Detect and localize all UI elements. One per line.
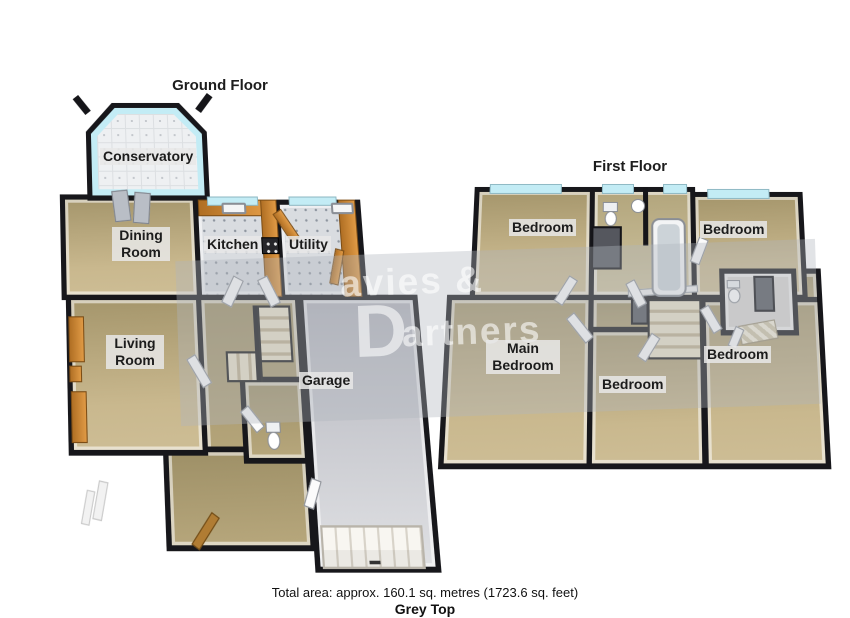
first-floor-title: First Floor bbox=[535, 158, 725, 175]
label-dining-room: Dining Room bbox=[112, 227, 170, 261]
kitchen-sink bbox=[221, 203, 246, 214]
footer: Total area: approx. 160.1 sq. metres (17… bbox=[0, 585, 850, 617]
bathroom-toilet bbox=[605, 211, 617, 226]
wc-toilet bbox=[267, 432, 281, 450]
living-side-table bbox=[69, 366, 82, 383]
label-bedroom-bottom-middle: Bedroom bbox=[599, 376, 666, 393]
bedroom-top-left-window bbox=[490, 184, 562, 194]
utility-window bbox=[288, 196, 337, 205]
total-area-text: Total area: approx. 160.1 sq. metres (17… bbox=[0, 585, 850, 600]
label-bedroom-top-right: Bedroom bbox=[700, 221, 767, 238]
label-living-room: Living Room bbox=[106, 335, 164, 369]
bedroom-top-right-window bbox=[707, 189, 770, 199]
label-kitchen: Kitchen bbox=[204, 236, 261, 253]
bathroom-window bbox=[602, 184, 634, 194]
utility-sink bbox=[331, 203, 354, 214]
garage-door-handle bbox=[369, 561, 380, 565]
ground-floor-title: Ground Floor bbox=[130, 77, 310, 94]
living-sofa bbox=[71, 391, 88, 443]
watermark-band: D avies & artners bbox=[175, 239, 820, 426]
watermark-line1: avies & bbox=[340, 260, 485, 302]
label-conservatory: Conservatory bbox=[100, 148, 196, 165]
bathroom-sink bbox=[631, 199, 645, 213]
porch-step bbox=[92, 480, 108, 521]
label-garage: Garage bbox=[299, 372, 353, 389]
branding-text: Grey Top bbox=[0, 601, 850, 617]
bathroom-partition-wall bbox=[643, 187, 648, 246]
conservatory-door-panel bbox=[133, 192, 151, 225]
label-utility: Utility bbox=[286, 236, 331, 253]
kitchen-hob bbox=[261, 237, 280, 254]
label-bedroom-top-left: Bedroom bbox=[509, 219, 576, 236]
label-main-bedroom: Main Bedroom bbox=[486, 340, 560, 374]
label-bedroom-bottom-right: Bedroom bbox=[704, 346, 771, 363]
living-sofa bbox=[68, 316, 85, 362]
bathroom-window bbox=[663, 184, 687, 194]
floorplan-page: D avies & artners Ground Floor First Flo… bbox=[0, 0, 850, 618]
watermark-initial: D bbox=[353, 293, 409, 369]
